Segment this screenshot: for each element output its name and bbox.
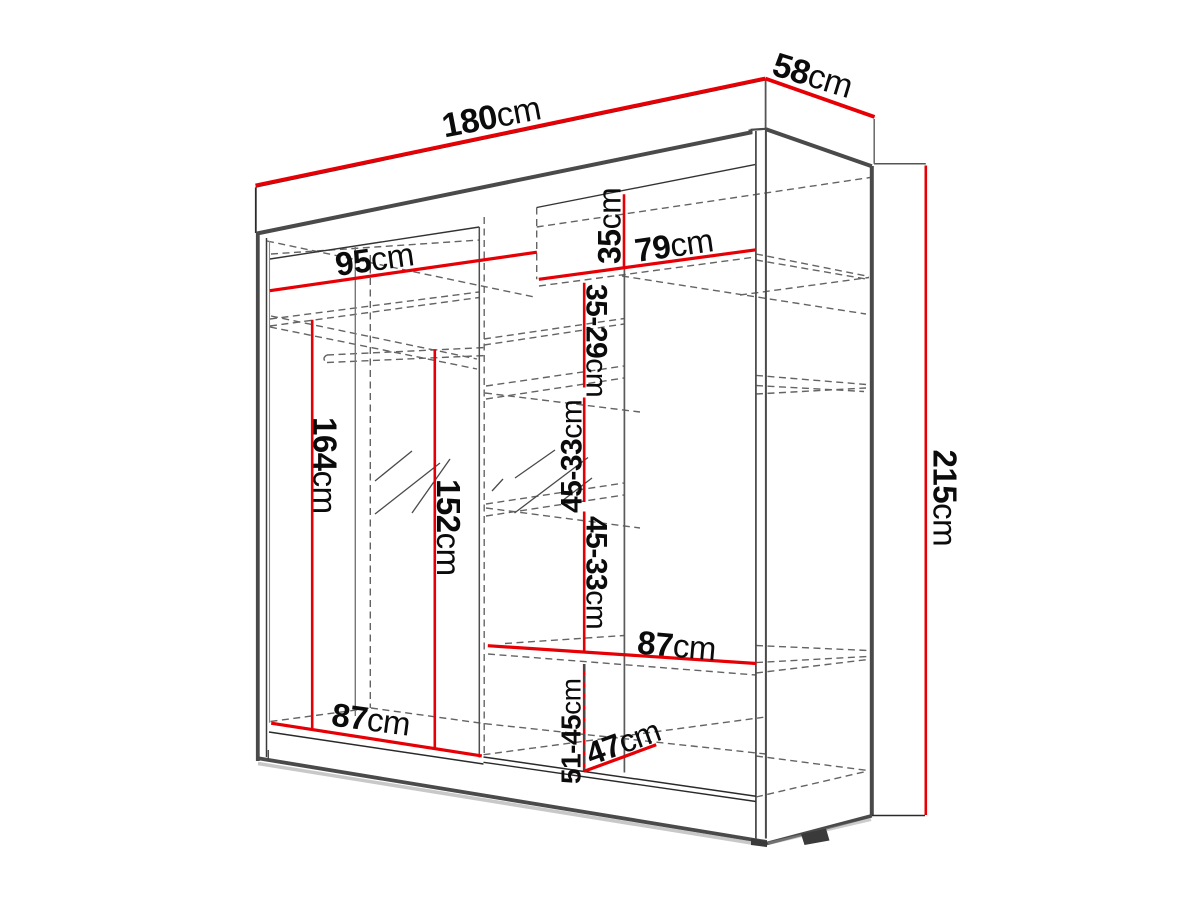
svg-text:51-45cm: 51-45cm: [556, 679, 587, 784]
svg-text:45-33cm: 45-33cm: [580, 516, 613, 629]
svg-text:152cm: 152cm: [430, 479, 467, 576]
svg-text:164cm: 164cm: [307, 417, 344, 514]
svg-text:87cm: 87cm: [636, 624, 718, 668]
svg-text:45-33cm: 45-33cm: [556, 400, 589, 513]
svg-text:35-29cm: 35-29cm: [580, 284, 613, 397]
svg-text:215cm: 215cm: [927, 450, 964, 547]
svg-text:35cm: 35cm: [592, 188, 628, 264]
